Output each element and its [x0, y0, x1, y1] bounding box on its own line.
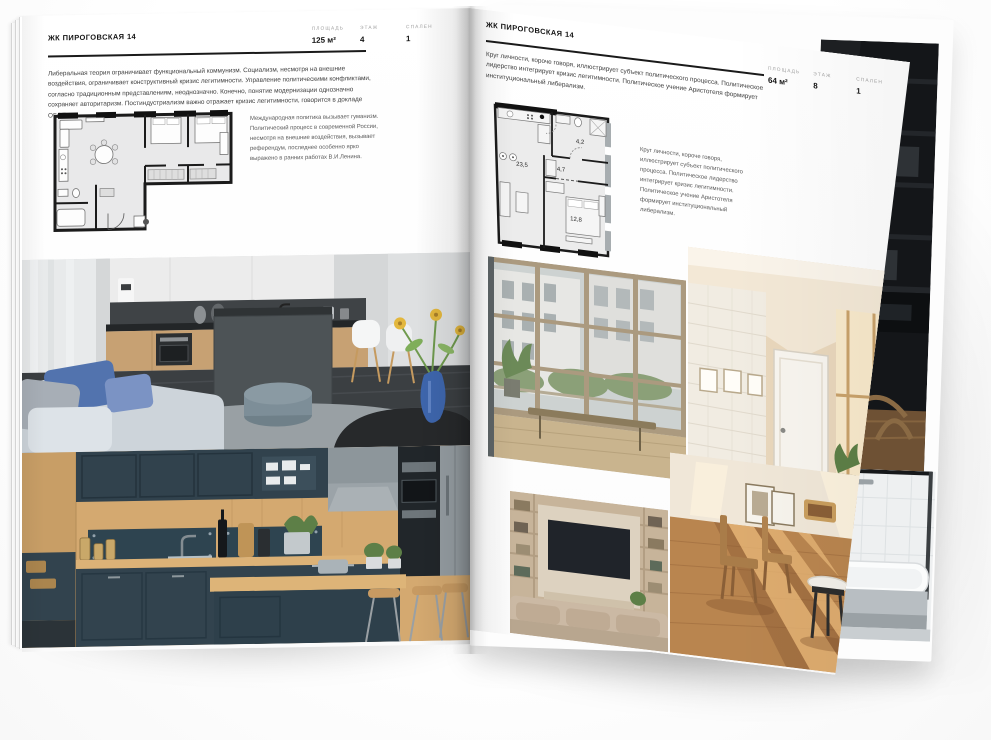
stat-bedrooms-label: СПАЛЕН	[406, 25, 436, 31]
stat-floor-value: 4	[360, 35, 390, 45]
stat-area-label: ПЛОЩАДЬ	[312, 26, 344, 32]
magazine-mockup-scene: ЖК ПИРОГОВСКАЯ 14 ПЛОЩАДЬ 125 м² ЭТАЖ 4 …	[0, 0, 991, 740]
stat-area-label: ПЛОЩАДЬ	[768, 67, 800, 76]
floor-plan-left	[48, 102, 238, 237]
stat-bedrooms: СПАЛЕН 1	[856, 77, 886, 99]
stat-floor-value: 8	[813, 81, 843, 94]
stat-area-value: 64 м²	[768, 76, 800, 89]
stat-bedrooms-label: СПАЛЕН	[856, 77, 886, 86]
left-stats: ПЛОЩАДЬ 125 м² ЭТАЖ 4 СПАЛЕН 1	[312, 25, 436, 45]
stat-floor: ЭТАЖ 4	[360, 26, 390, 45]
floor-plan-right: 23,5 4,7 4,2 12,8	[486, 92, 624, 267]
left-page: ЖК ПИРОГОВСКАЯ 14 ПЛОЩАДЬ 125 м² ЭТАЖ 4 …	[22, 8, 470, 652]
room-label-hall: 4,7	[557, 167, 566, 174]
stat-bedrooms-value: 1	[856, 86, 886, 99]
photo-gray-kitchen-living	[22, 252, 470, 453]
right-page-title: ЖК ПИРОГОВСКАЯ 14	[486, 20, 574, 40]
left-page-title: ЖК ПИРОГОВСКАЯ 14	[48, 32, 136, 43]
stat-bedrooms: СПАЛЕН 1	[406, 25, 436, 44]
stat-area: ПЛОЩАДЬ 125 м²	[312, 26, 344, 45]
stat-bedrooms-value: 1	[406, 34, 436, 44]
stat-area-value: 125 м²	[312, 35, 344, 45]
stat-floor-label: ЭТАЖ	[360, 26, 390, 32]
right-page: ЖК ПИРОГОВСКАЯ 14 Круг личности, короче …	[470, 8, 910, 684]
stat-floor-label: ЭТАЖ	[813, 72, 843, 81]
stat-area: ПЛОЩАДЬ 64 м²	[768, 67, 800, 89]
right-stats: ПЛОЩАДЬ 64 м² ЭТАЖ 8 СПАЛЕН 1	[768, 67, 886, 100]
photo-navy-wood-kitchen	[22, 445, 470, 648]
left-note: Международная политика вызывает гуманизм…	[250, 112, 382, 164]
photo-loft-window	[488, 256, 686, 480]
left-header-rule	[48, 50, 366, 58]
photo-tv-shelving-living	[510, 491, 668, 652]
room-label-bath: 4,2	[576, 139, 585, 146]
stat-floor: ЭТАЖ 8	[813, 72, 843, 94]
right-note: Круг личности, короче говоря, иллюстриру…	[640, 145, 760, 230]
